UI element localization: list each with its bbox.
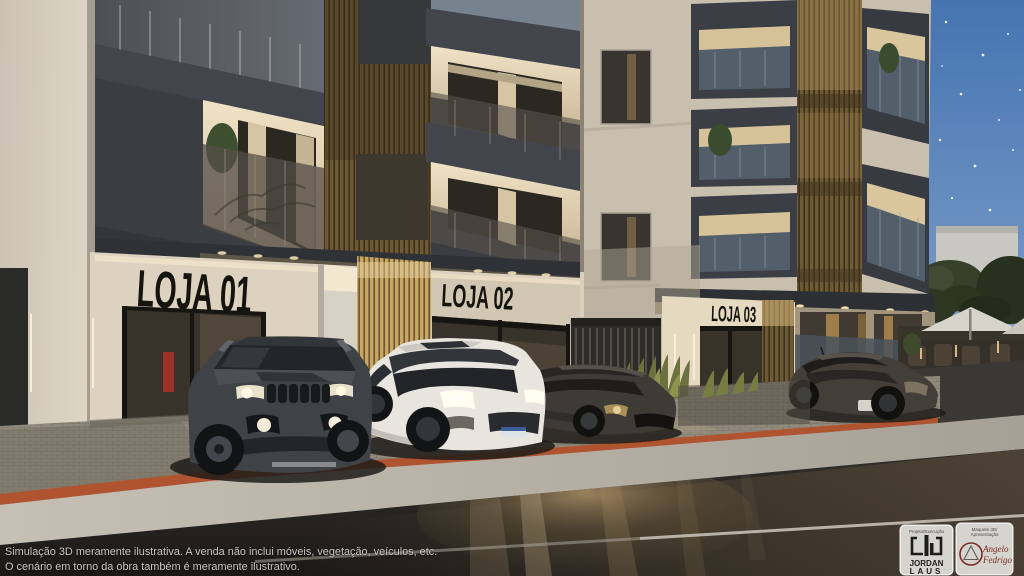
svg-text:LOJA 03: LOJA 03	[711, 301, 757, 327]
svg-text:Fedrigo: Fedrigo	[982, 555, 1012, 565]
svg-text:Angelo: Angelo	[982, 544, 1009, 554]
svg-text:LOJA 01: LOJA 01	[135, 260, 253, 325]
svg-text:LOJA 02: LOJA 02	[441, 277, 515, 317]
